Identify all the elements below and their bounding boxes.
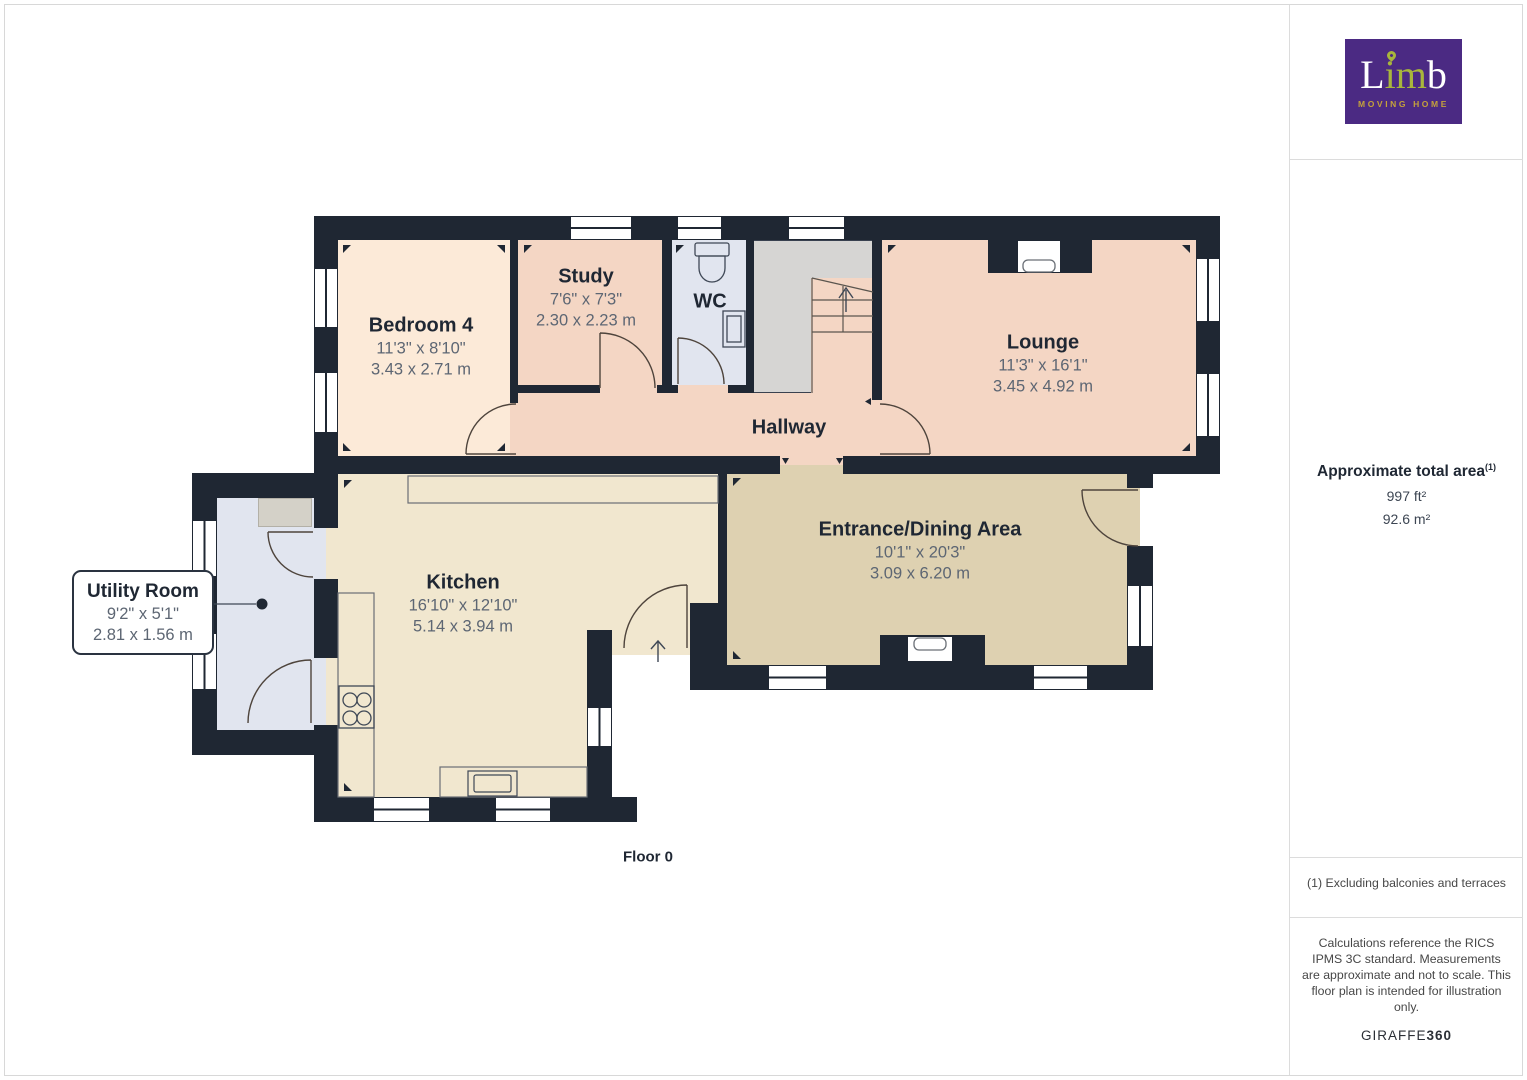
room-dim-metric: 2.30 x 2.23 m	[536, 311, 636, 332]
wall-mid	[314, 456, 1220, 474]
label-bedroom4: Bedroom 4 11'3" x 8'10" 3.43 x 2.71 m	[369, 314, 473, 381]
wall-porch-right	[690, 603, 727, 690]
window	[768, 665, 827, 690]
room-utility-floor	[217, 498, 314, 730]
door-gap-utility-bottom	[314, 658, 338, 725]
window	[314, 372, 338, 433]
area-footnote: (1) Excluding balconies and terraces	[1290, 876, 1523, 890]
lounge-fireplace-opening	[1018, 241, 1060, 272]
wall-kitchen-dining	[718, 456, 727, 603]
stairs-run	[811, 278, 873, 393]
label-kitchen: Kitchen 16'10" x 12'10" 5.14 x 3.94 m	[409, 571, 518, 638]
window	[677, 216, 722, 240]
room-name: Hallway	[752, 416, 826, 441]
total-area-imperial: 997 ft²	[1290, 488, 1523, 504]
disclaimer-text: Calculations reference the RICS IPMS 3C …	[1302, 936, 1511, 1016]
logo-letter-l: L	[1360, 52, 1384, 97]
room-dim-metric: 3.45 x 4.92 m	[993, 377, 1093, 398]
room-name: Lounge	[993, 331, 1093, 356]
room-dim-imperial: 10'1" x 20'3"	[819, 543, 1022, 564]
window	[788, 216, 845, 240]
door-gap-bedroom	[510, 403, 518, 456]
room-dim-imperial: 16'10" x 12'10"	[409, 596, 518, 617]
window	[1196, 258, 1220, 322]
label-study: Study 7'6" x 7'3" 2.30 x 2.23 m	[536, 265, 636, 332]
room-name: Utility Room	[87, 579, 199, 604]
room-name: Entrance/Dining Area	[819, 518, 1022, 543]
utility-room-callout: Utility Room 9'2" x 5'1" 2.81 x 1.56 m	[72, 570, 214, 655]
giraffe360-brand: GIRAFFE360	[1290, 1028, 1523, 1043]
washing-machine-icon	[258, 498, 312, 527]
room-dim-imperial: 9'2" x 5'1"	[87, 604, 199, 625]
wall-wc-right	[746, 240, 754, 393]
door-gap-utility-top	[314, 528, 338, 579]
door-gap-wc	[678, 385, 728, 393]
sidebar-separator	[1290, 857, 1523, 858]
room-name: Bedroom 4	[369, 314, 473, 339]
total-area-section: Approximate total area(1) 997 ft² 92.6 m…	[1290, 462, 1523, 527]
room-name: Kitchen	[409, 571, 518, 596]
label-dining: Entrance/Dining Area 10'1" x 20'3" 3.09 …	[819, 518, 1022, 585]
footnote-ref: (1)	[1485, 462, 1496, 472]
giraffe-brand-name: GIRAFFE	[1361, 1028, 1427, 1043]
sidebar-divider	[1289, 5, 1290, 1075]
room-dim-metric: 3.09 x 6.20 m	[819, 564, 1022, 585]
room-dim-imperial: 11'3" x 8'10"	[369, 339, 473, 360]
porch-recess	[612, 655, 690, 797]
label-wc: WC	[693, 290, 726, 315]
window	[1196, 373, 1220, 437]
opening-hallway-dining	[780, 456, 843, 474]
dining-fireplace-opening	[908, 637, 952, 661]
room-dim-imperial: 11'3" x 16'1"	[993, 356, 1093, 377]
room-name: WC	[693, 290, 726, 315]
limb-logo-word: Limb	[1360, 55, 1447, 95]
room-dim-metric: 3.43 x 2.71 m	[369, 360, 473, 381]
room-dim-metric: 2.81 x 1.56 m	[87, 625, 199, 646]
room-dim-metric: 5.14 x 3.94 m	[409, 617, 518, 638]
logo-tagline: MOVING HOME	[1358, 99, 1449, 109]
floorplan-page: Bedroom 4 11'3" x 8'10" 3.43 x 2.71 m St…	[0, 0, 1527, 1080]
wall-study-right	[662, 240, 672, 393]
window	[1127, 585, 1153, 647]
door-gap-lounge	[872, 400, 882, 456]
sidebar-separator	[1290, 159, 1523, 160]
door-gap-dining	[1127, 488, 1153, 546]
window	[373, 797, 430, 822]
room-dim-imperial: 7'6" x 7'3"	[536, 290, 636, 311]
door-gap-study	[600, 385, 657, 393]
window	[1033, 665, 1088, 690]
room-name: Study	[536, 265, 636, 290]
total-area-metric: 92.6 m²	[1290, 511, 1523, 527]
porch-recess-side	[690, 690, 718, 797]
limb-logo: Limb MOVING HOME	[1345, 39, 1462, 124]
label-lounge: Lounge 11'3" x 16'1" 3.45 x 4.92 m	[993, 331, 1093, 398]
window	[495, 797, 551, 822]
window	[314, 268, 338, 328]
window	[570, 216, 632, 240]
sidebar-separator	[1290, 917, 1523, 918]
label-hallway: Hallway	[752, 416, 826, 441]
floor-label: Floor 0	[623, 849, 673, 866]
window	[192, 520, 217, 577]
logo-letter-b: b	[1427, 52, 1447, 97]
wall-top	[314, 216, 1220, 240]
window	[587, 707, 612, 747]
total-area-title: Approximate total area(1)	[1290, 462, 1523, 481]
giraffe-brand-suffix: 360	[1426, 1028, 1452, 1043]
